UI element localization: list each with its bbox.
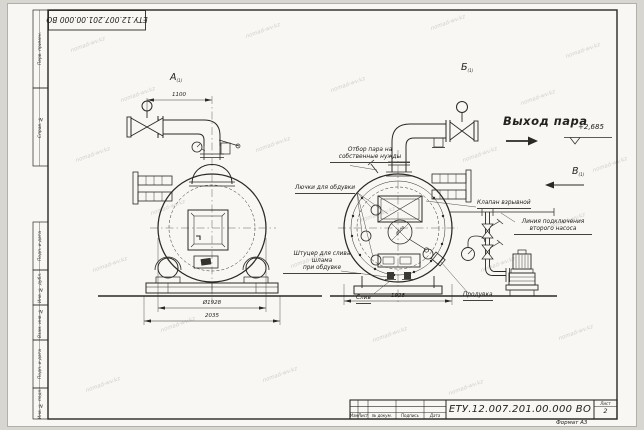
tb-col-izm: Изм	[350, 413, 358, 419]
rear-level-gauge-icon	[432, 170, 471, 202]
blow-hatches-callout: Лючки для обдувки	[295, 185, 355, 194]
front-safety-valve-icon	[219, 140, 240, 154]
second-pump-callout: Линия подключения второго насоса	[514, 219, 592, 235]
bottom-hatch	[378, 254, 420, 280]
margin-field-inv-podl: Инв. № подл.	[33, 388, 48, 419]
explosion-valve-hatch	[378, 196, 422, 222]
front-manometer-icon	[192, 142, 205, 152]
margin-field-perv-primen: Перв. примен.	[33, 10, 48, 88]
dim-pipe-offset: 1100	[165, 92, 193, 98]
sludge-drain-callout: Штуцер для слива шлама при обдувке	[283, 251, 361, 274]
elevation-value: +2,685	[578, 124, 604, 131]
tb-col-dokum: № докум.	[368, 413, 396, 419]
view-sub: (1)	[468, 68, 474, 73]
sheet-frame	[33, 10, 617, 419]
rear-steam-pipe	[368, 102, 478, 177]
explosion-valve-callout: Клапан взрывной	[477, 200, 531, 209]
elevation-mark-icon	[564, 138, 612, 145]
view-label-b: Б(1)	[461, 62, 473, 73]
direction-arrows	[506, 137, 612, 189]
callout-line: при обдувке	[283, 265, 361, 272]
view-sub: (1)	[177, 78, 183, 83]
margin-field-sprav: Справ. №	[33, 88, 48, 166]
drawing-page: nomad-wv.kz nomad-wv.kz nomad-wv.kz noma…	[0, 0, 644, 430]
tb-col-podpis: Подпись	[396, 413, 424, 419]
feed-pump-icon	[506, 250, 538, 296]
drain-callout: Слив	[356, 295, 371, 304]
tb-sheet-number: 2	[594, 408, 617, 415]
title-doc-number: ЕТУ.12.007.201.00.000 ВО	[446, 400, 594, 419]
margin-field-podp-data-1: Подп. и дата	[33, 222, 48, 270]
dim-overall-width: 2035	[196, 313, 228, 319]
own-needs-callout: Отбор пара на собственные нужды	[330, 147, 410, 163]
callout-line: Штуцер для слива шлама	[283, 251, 361, 265]
view-label-a: А(1)	[170, 72, 182, 83]
callout-line: собственные нужды	[330, 154, 410, 161]
top-doc-number: ЕТУ.12.007.201.00.000 ВО	[48, 10, 146, 30]
dim-rear-width: 1928	[380, 293, 416, 299]
margin-field-inv-dubl: Инв. № дубл.	[33, 270, 48, 305]
callout-line: Отбор пара на	[330, 147, 410, 154]
format-label: Формат А3	[556, 420, 587, 427]
tb-sheet-label: Лист	[594, 401, 617, 407]
blowdown-callout: Продувка	[463, 292, 493, 301]
margin-field-vzam-inv: Взам. инв. №	[33, 305, 48, 340]
tb-col-data: Дата	[424, 413, 446, 419]
callout-line: второго насоса	[514, 226, 592, 233]
view-sub: (1)	[579, 172, 585, 177]
tb-col-list: Лист	[358, 413, 368, 419]
dim-shell-diameter: Ø1928	[190, 300, 234, 306]
front-view-drawing	[98, 96, 322, 325]
view-label-v: В(1)	[572, 166, 584, 177]
pressure-gauge-icon	[462, 236, 486, 261]
margin-field-podp-data-2: Подп. и дата	[33, 340, 48, 388]
steam-outlet-label: Выход пара	[503, 118, 587, 125]
drawing-linework	[0, 0, 644, 430]
callout-line: Линия подключения	[514, 219, 592, 226]
